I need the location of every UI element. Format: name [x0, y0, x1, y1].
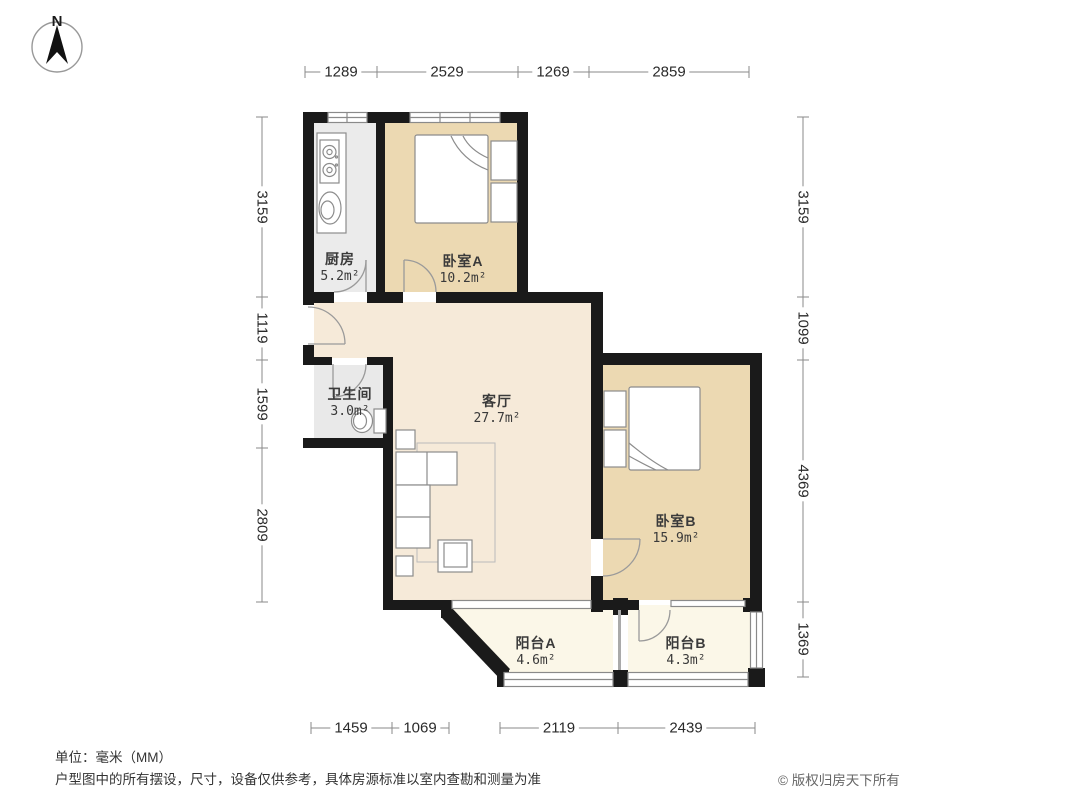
room-label-balcony-b: 阳台B 4.3m²	[665, 635, 706, 669]
dimension-label: 2119	[539, 721, 579, 736]
nightstand	[604, 430, 626, 467]
nightstand	[604, 391, 626, 427]
room-name: 阳台A	[515, 635, 556, 652]
room-area: 4.3m²	[665, 652, 706, 669]
balcony-divider	[618, 610, 621, 670]
dimension-label: 2809	[255, 504, 270, 545]
nightstand	[491, 141, 517, 180]
copyright: © 版权归房天下所有	[778, 769, 900, 789]
dimension-label: 2439	[665, 721, 706, 736]
dimension-label: 2859	[648, 65, 689, 80]
room-name: 卧室A	[440, 253, 487, 270]
room-area: 3.0m²	[328, 403, 373, 420]
bed-a	[415, 135, 517, 223]
dimension-label: 1369	[796, 618, 811, 659]
room-label-kitchen: 厨房 5.2m²	[320, 251, 359, 285]
dimension-label: 1289	[320, 65, 361, 80]
balcony-a-sill	[452, 601, 591, 609]
compass-north-label: N	[52, 13, 63, 30]
balcony-b-side-window	[751, 612, 763, 668]
room-label-living: 客厅 27.7m²	[474, 393, 521, 427]
room-area: 4.6m²	[515, 652, 556, 669]
dimension-label: 1459	[330, 721, 371, 736]
dimension-label: 3159	[796, 186, 811, 227]
balcony-b-railing	[628, 673, 748, 687]
room-name: 阳台B	[665, 635, 706, 652]
room-name: 卧室B	[653, 513, 700, 530]
dimension-label: 1099	[796, 307, 811, 348]
living-floor-upper	[314, 302, 591, 358]
dimension-label: 2529	[426, 65, 467, 80]
dimension-label: 1119	[255, 308, 270, 347]
dimension-label: 1599	[255, 383, 270, 424]
balcony-b-sill	[671, 601, 745, 607]
end-table	[396, 430, 415, 449]
room-area: 15.9m²	[653, 530, 700, 547]
kitchen-window	[328, 113, 367, 123]
room-area: 27.7m²	[474, 410, 521, 427]
floor-plan-drawing	[0, 0, 1066, 800]
unit-note: 单位：毫米（MM）	[55, 746, 172, 766]
balcony-a-railing	[504, 673, 613, 687]
room-name: 卫生间	[328, 386, 373, 403]
room-label-bathroom: 卫生间 3.0m²	[328, 386, 373, 420]
disclaimer: 户型图中的所有摆设，尺寸，设备仅供参考，具体房源标准以室内查勘和测量为准	[55, 768, 541, 788]
room-label-bedroom-b: 卧室B 15.9m²	[653, 513, 700, 547]
dimension-label: 3159	[255, 186, 270, 227]
kitchen-counter	[317, 133, 346, 233]
room-area: 5.2m²	[320, 268, 359, 285]
nightstand	[491, 183, 517, 222]
room-name: 厨房	[320, 251, 359, 268]
floor-plan: N 1289 2529 1269 2859 3159 1119 1599 280…	[0, 0, 1066, 800]
room-area: 10.2m²	[440, 270, 487, 287]
dimension-label: 1269	[532, 65, 573, 80]
room-label-balcony-a: 阳台A 4.6m²	[515, 635, 556, 669]
room-name: 客厅	[474, 393, 521, 410]
room-label-bedroom-a: 卧室A 10.2m²	[440, 253, 487, 287]
dimension-label: 4369	[796, 460, 811, 501]
end-table	[396, 556, 413, 576]
dimension-label: 1069	[399, 721, 440, 736]
bedroom-a-window	[410, 113, 500, 123]
